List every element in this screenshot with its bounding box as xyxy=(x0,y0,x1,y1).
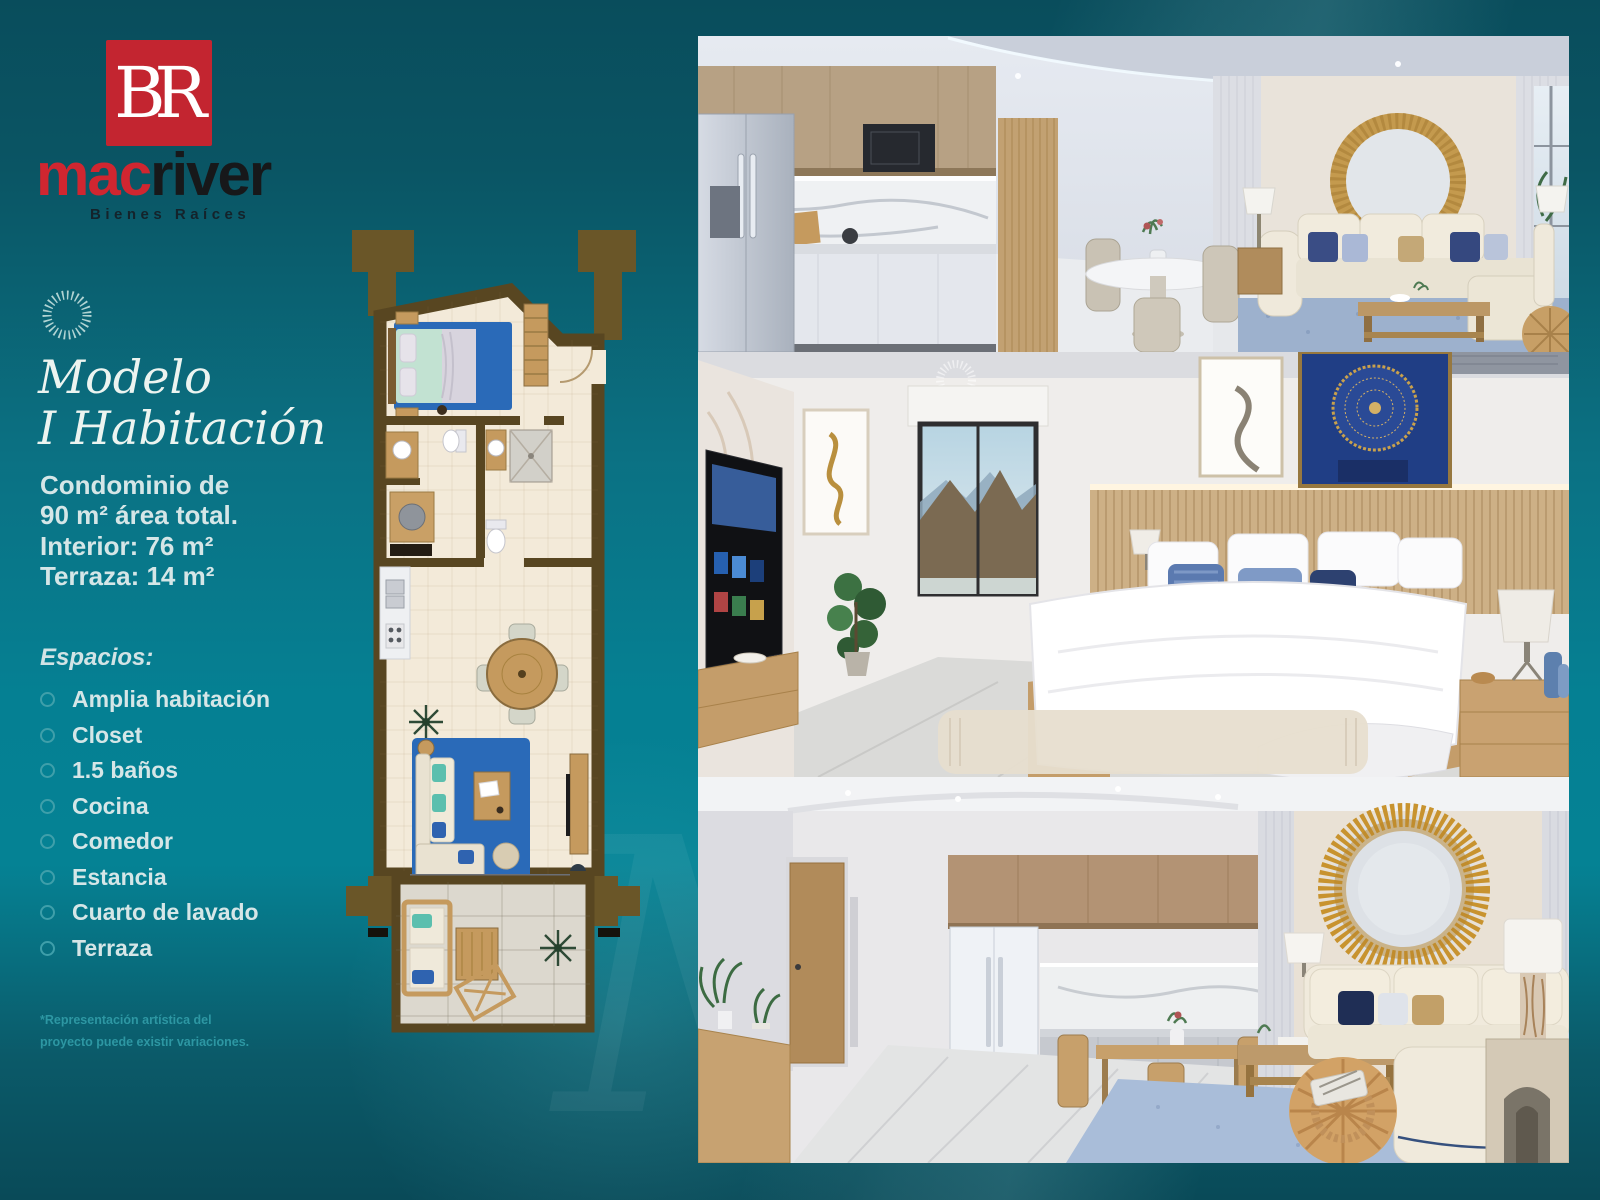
footnote-line2: proyecto puede existir variaciones. xyxy=(40,1032,249,1054)
navy-pillow xyxy=(1308,232,1338,262)
framed-art-left xyxy=(804,410,868,534)
list-item-label: Cocina xyxy=(72,793,149,820)
floorplan-plant xyxy=(409,705,443,739)
bullet-ring-icon xyxy=(40,799,55,814)
disclaimer-footnote: *Representación artística del proyecto p… xyxy=(40,1010,249,1054)
bullet-ring-icon xyxy=(40,692,55,707)
list-item: 1.5 baños xyxy=(40,757,270,784)
render-living-room-kitchen xyxy=(698,777,1569,1163)
page-title-line1: Modelo xyxy=(38,352,326,403)
art-above-bed xyxy=(1200,352,1450,486)
window-mountain-view xyxy=(908,386,1048,594)
spaces-list: Amplia habitación Closet 1.5 baños Cocin… xyxy=(40,686,270,970)
hallway-door xyxy=(786,857,858,1067)
flyer-page: M BR macriver Bienes Raíces Modelo I Hab… xyxy=(0,0,1600,1200)
woven-pouf xyxy=(1289,1057,1397,1163)
list-item: Amplia habitación xyxy=(40,686,270,713)
list-item-label: Closet xyxy=(72,722,142,749)
brand-name-mac: mac xyxy=(36,141,150,208)
brand-logo-square: BR xyxy=(106,40,212,146)
unit-specs: Condominio de 90 m² área total. Interior… xyxy=(40,470,238,592)
list-item: Cocina xyxy=(40,793,270,820)
photo-column xyxy=(698,36,1569,1163)
list-item: Estancia xyxy=(40,864,270,891)
bullet-ring-icon xyxy=(40,905,55,920)
bedroom-rug xyxy=(938,710,1368,774)
bullet-ring-icon xyxy=(40,728,55,743)
list-item-label: 1.5 baños xyxy=(72,757,178,784)
list-item: Closet xyxy=(40,722,270,749)
bedside-lamp-right xyxy=(1498,590,1554,642)
cutting-board xyxy=(791,211,820,246)
navy-pillow xyxy=(1338,991,1374,1025)
floor-plan xyxy=(338,226,666,1041)
microwave xyxy=(863,124,935,172)
floorplan-terrace xyxy=(396,880,590,1028)
kettle xyxy=(842,228,858,244)
bullet-ring-icon xyxy=(40,870,55,885)
spec-line: Condominio de xyxy=(40,470,238,500)
page-title-line2: I Habitación xyxy=(38,403,326,454)
rattan-round-mirror xyxy=(1330,815,1478,963)
list-item: Cuarto de lavado xyxy=(40,899,270,926)
brand-name-river: river xyxy=(150,141,270,208)
brand-name: macriver xyxy=(36,140,270,209)
list-item-label: Terraza xyxy=(72,935,152,962)
list-item-label: Comedor xyxy=(72,828,173,855)
floorplan-closet xyxy=(524,304,548,386)
floorplan-kitchen xyxy=(380,567,410,659)
list-item: Comedor xyxy=(40,828,270,855)
table-lamp-left xyxy=(1284,933,1324,963)
list-item-label: Amplia habitación xyxy=(72,686,270,713)
spec-line: 90 m² área total. xyxy=(40,500,238,530)
render-kitchen-dining-living xyxy=(698,36,1569,352)
render-bedroom-mountain-view xyxy=(698,352,1569,777)
bullet-ring-icon xyxy=(40,941,55,956)
spec-line: Terraza: 14 m² xyxy=(40,561,238,591)
brand-tagline: Bienes Raíces xyxy=(90,206,250,223)
page-title: Modelo I Habitación xyxy=(38,352,326,453)
sunburst-icon xyxy=(38,286,96,344)
list-item-label: Estancia xyxy=(72,864,167,891)
marble-backsplash xyxy=(1040,963,1292,1031)
list-item-label: Cuarto de lavado xyxy=(72,899,259,926)
spec-line: Interior: 76 m² xyxy=(40,531,238,561)
spaces-heading: Espacios: xyxy=(40,644,153,672)
list-item: Terraza xyxy=(40,935,270,962)
slatted-door xyxy=(998,118,1058,352)
bullet-ring-icon xyxy=(40,763,55,778)
bullet-ring-icon xyxy=(40,834,55,849)
footnote-line1: *Representación artística del xyxy=(40,1010,249,1032)
floorplan-bedroom xyxy=(388,312,512,420)
refrigerator xyxy=(698,114,794,352)
brand-monogram: BR xyxy=(114,52,196,134)
